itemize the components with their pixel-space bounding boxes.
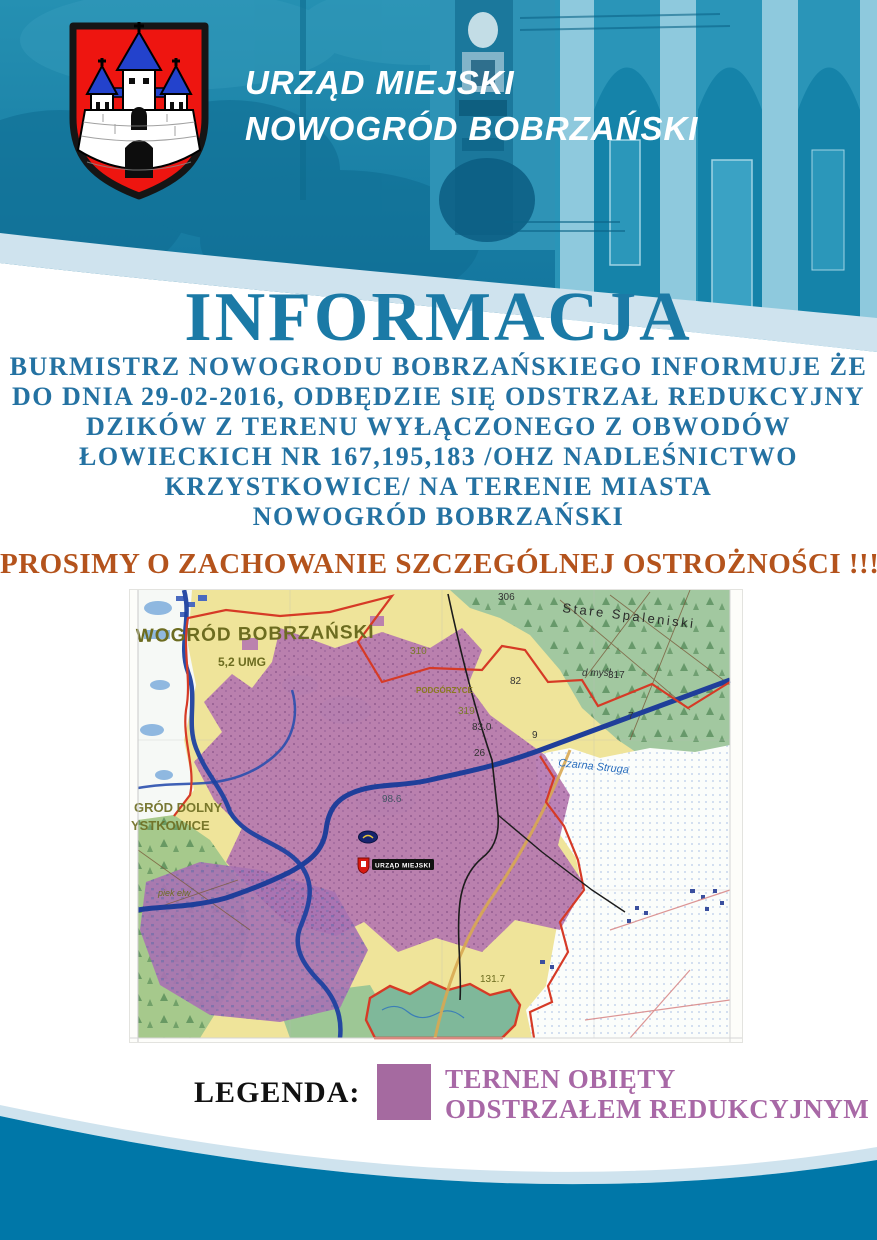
svg-text:306: 306 bbox=[498, 592, 515, 603]
warning-text: PROSIMY O ZACHOWANIE SZCZEGÓLNEJ OSTROŻN… bbox=[0, 548, 877, 581]
town-name-label: WOGRÓD BOBRZAŃSKI bbox=[136, 621, 375, 647]
piek-elw-label: piek elw bbox=[157, 888, 191, 898]
office-marker-label: URZĄD MIEJSKI bbox=[375, 863, 431, 870]
map-image: WOGRÓD BOBRZAŃSKI 5,2 UMG Stare Spalenis… bbox=[130, 590, 742, 1042]
grod-dolny-label: GRÓD DOLNY bbox=[134, 800, 222, 815]
post-office-marker bbox=[359, 831, 378, 843]
body-line: DO DNIA 29-02-2016, ODBĘDZIE SIĘ ODSTRZA… bbox=[0, 382, 877, 412]
org-title: URZĄD MIEJSKI NOWOGRÓD BOBRZAŃSKI bbox=[245, 60, 698, 152]
body-line: DZIKÓW Z TERENU WYŁĄCZONEGO Z OBWODÓW bbox=[0, 412, 877, 442]
org-name-line2: NOWOGRÓD BOBRZAŃSKI bbox=[245, 106, 698, 152]
org-name-line1: URZĄD MIEJSKI bbox=[245, 60, 698, 106]
podgorzyce-label: PODGÓRZYCE bbox=[416, 686, 474, 695]
announcement-title: INFORMACJA bbox=[0, 278, 877, 358]
ystkowice-label: YSTKOWICE bbox=[131, 818, 210, 833]
announcement-body: BURMISTRZ NOWOGRODU BOBRZAŃSKIEGO INFORM… bbox=[0, 352, 877, 532]
svg-text:7: 7 bbox=[628, 711, 634, 722]
eagle-plaque bbox=[468, 12, 498, 48]
svg-text:319: 319 bbox=[458, 706, 475, 717]
svg-text:26: 26 bbox=[474, 748, 486, 759]
body-line: NOWOGRÓD BOBRZAŃSKI bbox=[0, 502, 877, 532]
svg-text:83.0: 83.0 bbox=[472, 722, 492, 733]
svg-text:9: 9 bbox=[532, 730, 538, 741]
poster: URZĄD MIEJSKI NOWOGRÓD BOBRZAŃSKI INFORM… bbox=[0, 0, 877, 1240]
body-line: BURMISTRZ NOWOGRODU BOBRZAŃSKIEGO INFORM… bbox=[0, 352, 877, 382]
window bbox=[610, 140, 640, 265]
body-line: KRZYSTKOWICE/ NA TERENIE MIASTA bbox=[0, 472, 877, 502]
town-sublabel: 5,2 UMG bbox=[218, 655, 266, 669]
svg-text:310: 310 bbox=[410, 646, 427, 657]
legend-text-line1: TERNEN OBIĘTY bbox=[445, 1064, 869, 1094]
body-line: ŁOWIECKICH NR 167,195,183 /OHZ NADLEŚNIC… bbox=[0, 442, 877, 472]
footer-wave bbox=[0, 1100, 877, 1240]
svg-text:317: 317 bbox=[608, 670, 625, 681]
svg-text:98.6: 98.6 bbox=[382, 794, 402, 805]
topographic-map: WOGRÓD BOBRZAŃSKI 5,2 UMG Stare Spalenis… bbox=[130, 590, 742, 1042]
svg-text:131.7: 131.7 bbox=[480, 974, 505, 985]
coat-of-arms bbox=[63, 18, 215, 204]
svg-text:82: 82 bbox=[510, 676, 522, 687]
bush bbox=[439, 158, 535, 242]
